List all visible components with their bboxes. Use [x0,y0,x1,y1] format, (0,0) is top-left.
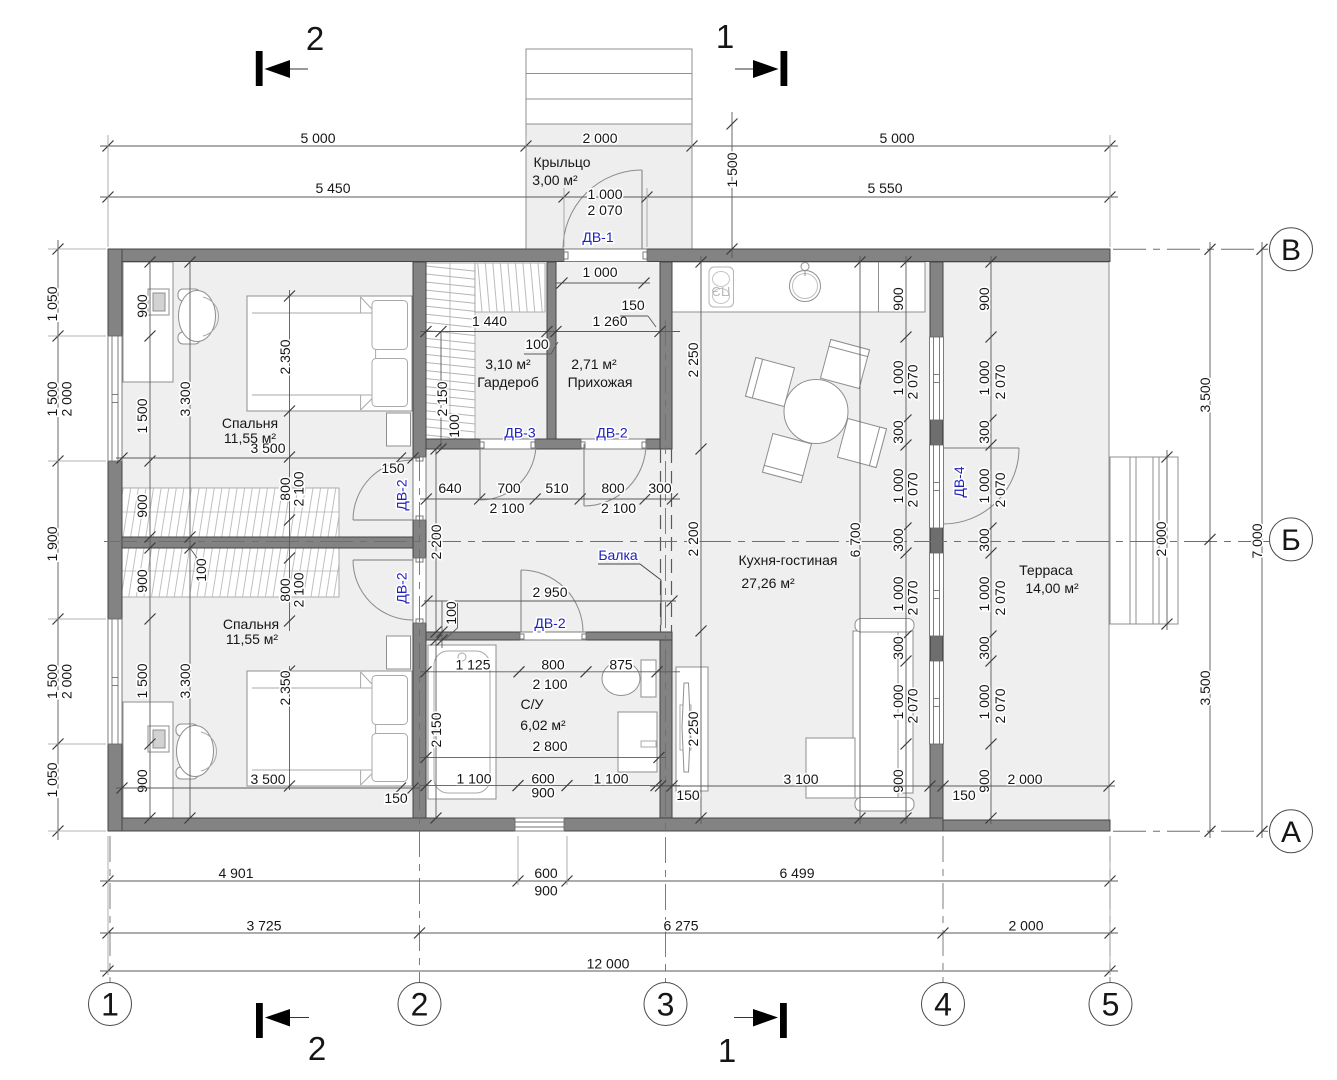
svg-text:800: 800 [541,657,565,673]
svg-text:300: 300 [890,528,906,552]
svg-text:ДВ-1: ДВ-1 [582,229,613,245]
svg-text:2 800: 2 800 [532,738,567,754]
svg-text:1 100: 1 100 [456,771,491,787]
svg-text:2 100: 2 100 [489,500,524,516]
svg-text:2 250: 2 250 [685,342,701,377]
svg-text:5 000: 5 000 [879,130,914,146]
svg-text:Б: Б [1281,524,1301,557]
svg-text:2 070: 2 070 [905,688,921,723]
svg-text:ДВ-2: ДВ-2 [596,425,627,441]
svg-text:2 070: 2 070 [905,472,921,507]
svg-text:2 070: 2 070 [992,472,1008,507]
svg-text:100: 100 [193,558,209,582]
svg-text:3 100: 3 100 [783,771,818,787]
svg-text:Крыльцо: Крыльцо [533,154,590,170]
svg-text:Спальня: Спальня [222,415,278,431]
svg-text:1 500: 1 500 [134,663,150,698]
svg-text:2 070: 2 070 [992,364,1008,399]
svg-text:1 000: 1 000 [976,360,992,395]
svg-text:900: 900 [531,785,555,801]
svg-text:14,00 м²: 14,00 м² [1025,580,1079,596]
svg-text:12 000: 12 000 [587,956,630,972]
svg-text:1 000: 1 000 [587,186,622,202]
svg-text:1 900: 1 900 [44,526,60,561]
svg-text:1 100: 1 100 [593,771,628,787]
svg-text:2 070: 2 070 [905,580,921,615]
svg-text:900: 900 [890,769,906,793]
svg-text:3 725: 3 725 [246,918,281,934]
svg-text:ПЭ: ПЭ [712,284,731,299]
svg-text:А: А [1281,816,1301,849]
svg-text:3 500: 3 500 [1197,377,1213,412]
svg-text:3 500: 3 500 [250,771,285,787]
svg-text:600: 600 [534,865,558,881]
svg-text:1: 1 [716,18,734,55]
svg-text:2 150: 2 150 [434,381,450,416]
svg-text:1: 1 [101,987,119,1023]
svg-text:2 070: 2 070 [992,688,1008,723]
svg-text:2 950: 2 950 [532,584,567,600]
svg-text:Прихожая: Прихожая [568,374,633,390]
svg-text:6,02 м²: 6,02 м² [520,717,566,733]
svg-text:11,55 м²: 11,55 м² [226,631,279,647]
svg-text:5 550: 5 550 [867,180,902,196]
svg-text:11,55 м²: 11,55 м² [224,430,277,446]
svg-text:2 000: 2 000 [1153,521,1169,556]
svg-text:2 000: 2 000 [582,130,617,146]
svg-text:2 200: 2 200 [685,521,701,556]
svg-text:ДВ-2: ДВ-2 [394,572,410,603]
svg-text:1: 1 [718,1032,736,1069]
svg-text:300: 300 [890,636,906,660]
svg-text:900: 900 [976,287,992,311]
svg-text:1 500: 1 500 [724,152,740,187]
svg-text:2 100: 2 100 [601,500,636,516]
svg-text:Кухня-гостиная: Кухня-гостиная [738,552,837,568]
svg-text:5 000: 5 000 [300,130,335,146]
svg-text:6 499: 6 499 [779,865,814,881]
svg-text:1 000: 1 000 [976,576,992,611]
svg-text:С/У: С/У [521,696,544,712]
svg-text:2 100: 2 100 [291,471,307,506]
svg-text:2 000: 2 000 [59,664,75,699]
svg-text:700: 700 [497,480,521,496]
svg-text:3,00 м²: 3,00 м² [532,172,578,188]
svg-text:2 070: 2 070 [992,580,1008,615]
svg-text:2 070: 2 070 [905,364,921,399]
svg-text:100: 100 [443,601,459,625]
svg-text:3 500: 3 500 [1197,670,1213,705]
svg-text:1 000: 1 000 [582,264,617,280]
svg-text:Спальня: Спальня [223,616,279,632]
svg-text:150: 150 [676,787,700,803]
svg-text:2 250: 2 250 [685,711,701,746]
svg-text:2 350: 2 350 [277,670,293,705]
svg-text:300: 300 [976,420,992,444]
svg-text:ДВ-3: ДВ-3 [504,425,535,441]
svg-text:150: 150 [384,790,408,806]
svg-text:100: 100 [525,336,549,352]
svg-text:5 450: 5 450 [315,180,350,196]
svg-text:2 200: 2 200 [428,524,444,559]
svg-text:875: 875 [609,657,633,673]
svg-text:900: 900 [134,769,150,793]
svg-text:2: 2 [306,20,324,57]
svg-text:1 125: 1 125 [455,657,490,673]
svg-text:2 000: 2 000 [1008,918,1043,934]
svg-text:1 000: 1 000 [976,468,992,503]
svg-text:3,10 м²: 3,10 м² [485,356,531,372]
svg-text:1 440: 1 440 [472,313,507,329]
svg-text:150: 150 [952,787,976,803]
svg-text:3 300: 3 300 [177,381,193,416]
svg-text:900: 900 [976,769,992,793]
svg-text:27,26 м²: 27,26 м² [741,575,795,591]
svg-text:2 000: 2 000 [1007,771,1042,787]
svg-text:ДВ-2: ДВ-2 [534,615,565,631]
svg-text:1 260: 1 260 [592,313,627,329]
svg-text:2: 2 [411,987,429,1023]
svg-text:6 275: 6 275 [663,918,698,934]
svg-text:100: 100 [446,414,462,438]
svg-text:1 000: 1 000 [976,684,992,719]
svg-text:Терраса: Терраса [1019,562,1073,578]
svg-text:900: 900 [134,569,150,593]
svg-text:510: 510 [545,480,569,496]
svg-text:2,71 м²: 2,71 м² [571,356,617,372]
svg-text:2 000: 2 000 [59,381,75,416]
svg-text:150: 150 [381,460,405,476]
svg-text:Гардероб: Гардероб [477,374,539,390]
svg-text:640: 640 [438,480,462,496]
svg-text:3 300: 3 300 [177,663,193,698]
svg-text:2 070: 2 070 [587,202,622,218]
svg-text:2 350: 2 350 [277,339,293,374]
svg-text:900: 900 [890,287,906,311]
svg-text:В: В [1281,234,1301,267]
svg-text:2: 2 [308,1030,326,1067]
svg-text:ДВ-4: ДВ-4 [951,466,967,497]
svg-text:2 100: 2 100 [532,676,567,692]
svg-text:3: 3 [657,987,675,1023]
svg-text:1 050: 1 050 [44,762,60,797]
svg-text:150: 150 [621,297,645,313]
svg-text:5: 5 [1102,987,1120,1023]
svg-text:1 500: 1 500 [134,398,150,433]
svg-text:2 100: 2 100 [291,572,307,607]
svg-text:6 700: 6 700 [847,522,863,557]
svg-text:4: 4 [934,987,952,1023]
svg-text:300: 300 [648,480,672,496]
svg-text:2 150: 2 150 [428,712,444,747]
svg-text:900: 900 [134,294,150,318]
svg-text:Балка: Балка [598,547,638,563]
svg-text:300: 300 [976,636,992,660]
svg-text:800: 800 [601,480,625,496]
svg-text:7 000: 7 000 [1249,523,1265,558]
svg-text:900: 900 [534,883,558,899]
svg-text:300: 300 [976,528,992,552]
svg-text:ДВ-2: ДВ-2 [394,479,410,510]
svg-text:900: 900 [134,494,150,518]
svg-text:4 901: 4 901 [218,865,253,881]
svg-text:1 050: 1 050 [44,286,60,321]
svg-text:300: 300 [890,420,906,444]
